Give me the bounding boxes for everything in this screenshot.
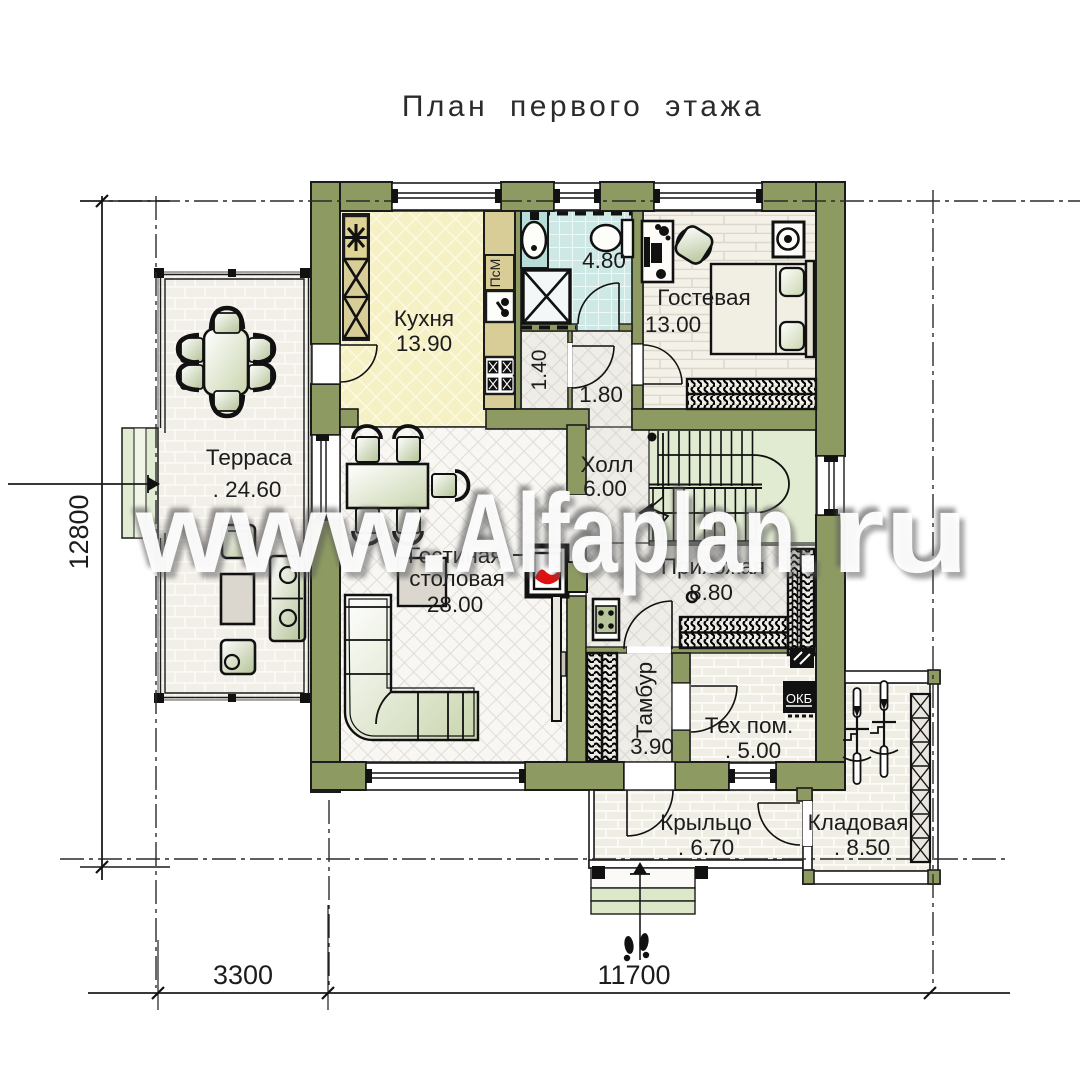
svg-text:. 6.70: . 6.70 — [678, 835, 734, 860]
svg-text:Кухня: Кухня — [394, 306, 454, 331]
svg-text:ru: ru — [831, 471, 969, 596]
svg-text:ПсМ: ПсМ — [487, 259, 503, 288]
svg-text:Тамбур: Тамбур — [632, 662, 657, 738]
svg-text:1.80: 1.80 — [579, 382, 623, 407]
svg-text:www.: www. — [135, 471, 451, 596]
svg-text:Гостевая: Гостевая — [657, 285, 750, 310]
svg-text:План первого этажа: План первого этажа — [402, 90, 764, 123]
svg-text:. 5.00: . 5.00 — [725, 738, 781, 763]
svg-text:11700: 11700 — [597, 960, 670, 990]
svg-text:ОКБ: ОКБ — [786, 691, 812, 706]
svg-text:Alfaplan.: Alfaplan. — [454, 471, 820, 596]
svg-text:13.90: 13.90 — [396, 331, 452, 356]
svg-text:Кладовая: Кладовая — [808, 810, 909, 835]
svg-text:12800: 12800 — [64, 494, 94, 569]
svg-text:4.80: 4.80 — [582, 248, 626, 273]
svg-text:Крыльцо: Крыльцо — [660, 810, 752, 835]
svg-text:3.90: 3.90 — [630, 734, 674, 759]
svg-text:3300: 3300 — [213, 960, 273, 990]
svg-text:Тех пом.: Тех пом. — [705, 713, 793, 738]
svg-text:. 8.50: . 8.50 — [834, 835, 890, 860]
svg-text:1.40: 1.40 — [528, 350, 551, 391]
svg-text:13.00: 13.00 — [645, 312, 701, 337]
